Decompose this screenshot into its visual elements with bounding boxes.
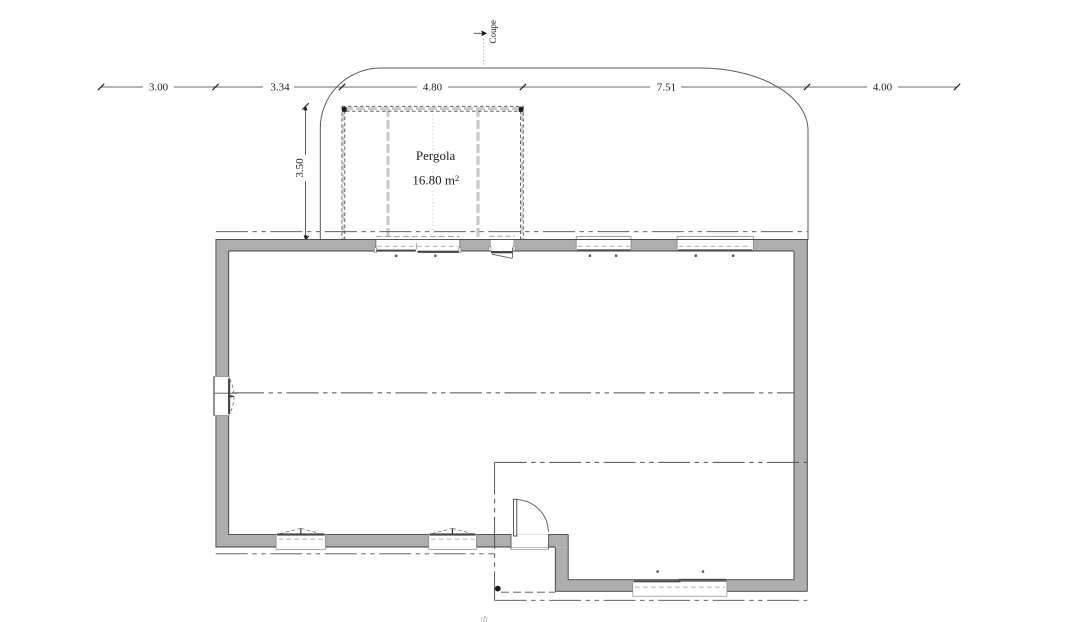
svg-text:3.50: 3.50 — [294, 158, 306, 178]
svg-text:4.80: 4.80 — [423, 82, 443, 94]
svg-text:3.00: 3.00 — [149, 82, 169, 94]
svg-text:3.34: 3.34 — [270, 82, 290, 94]
svg-text:Coupe: Coupe — [488, 20, 498, 44]
svg-text:16.80 m2: 16.80 m2 — [412, 172, 459, 187]
svg-text:4.00: 4.00 — [873, 82, 893, 94]
svg-text:Pergola: Pergola — [416, 148, 456, 163]
svg-text:7.51: 7.51 — [657, 82, 676, 94]
